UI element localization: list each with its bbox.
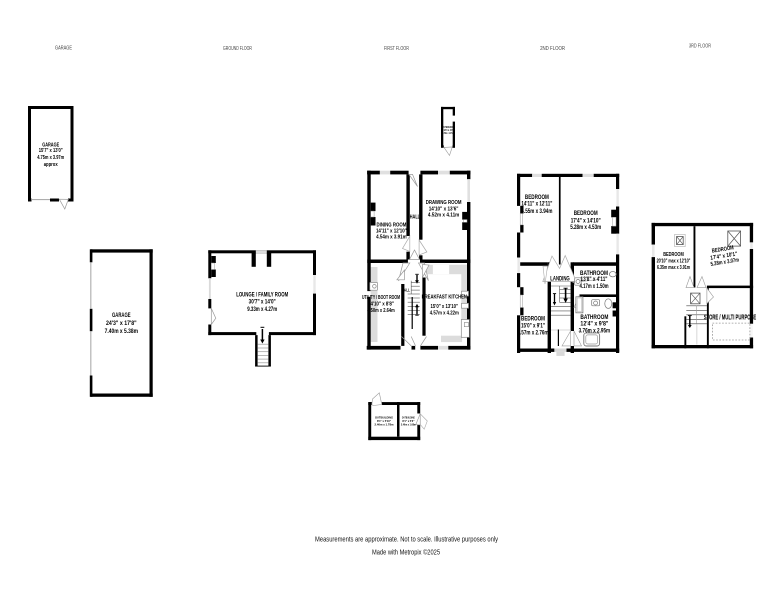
svg-text:4.50m x 2.64m: 4.50m x 2.64m (367, 308, 395, 314)
svg-text:BATHROOM: BATHROOM (580, 271, 608, 277)
svg-text:20'10" max x 12'10": 20'10" max x 12'10" (657, 259, 691, 265)
svg-text:Made with Metropix ©2025: Made with Metropix ©2025 (372, 548, 440, 557)
svg-text:15'0" x 9'1": 15'0" x 9'1" (521, 322, 545, 329)
svg-text:14'10" x 8'8": 14'10" x 8'8" (368, 302, 395, 308)
svg-text:13'8" x 4'11": 13'8" x 4'11" (581, 277, 608, 283)
svg-text:HALL: HALL (410, 215, 421, 221)
svg-text:BEDROOM: BEDROOM (574, 210, 598, 217)
svg-text:4.75m x 3.97m: 4.75m x 3.97m (37, 155, 64, 161)
svg-text:24'3" x 17'8": 24'3" x 17'8" (106, 320, 137, 327)
svg-text:4.54m x 3.91m: 4.54m x 3.91m (376, 235, 407, 241)
svg-text:2.46m x 1.68m: 2.46m x 1.68m (401, 423, 416, 427)
svg-text:4.17m x 1.50m: 4.17m x 1.50m (580, 284, 609, 290)
svg-text:5.28m x 4.53m: 5.28m x 4.53m (570, 224, 601, 231)
svg-text:BREAKFAST KITCHEN: BREAKFAST KITCHEN (422, 295, 468, 301)
svg-text:LANDING: LANDING (550, 276, 570, 283)
svg-text:7.40m x 5.38m: 7.40m x 5.38m (105, 328, 139, 335)
svg-text:14'11" x 12'11": 14'11" x 12'11" (521, 201, 552, 208)
svg-text:STORE / MULTI PURPOSE: STORE / MULTI PURPOSE (704, 313, 757, 322)
svg-text:2ND FLOOR: 2ND FLOOR (540, 46, 565, 52)
svg-text:14'10" x 13'6": 14'10" x 13'6" (429, 206, 459, 212)
svg-text:DRAWING ROOM: DRAWING ROOM (426, 200, 462, 206)
svg-text:4.57m x 4.22m: 4.57m x 4.22m (430, 311, 460, 317)
svg-text:GARAGE: GARAGE (112, 312, 131, 319)
svg-text:9.33m x 4.27m: 9.33m x 4.27m (247, 306, 277, 313)
svg-text:Measurements are approximate.: Measurements are approximate. Not to sca… (315, 534, 498, 543)
svg-text:30'7" x 14'0": 30'7" x 14'0" (249, 299, 276, 306)
svg-text:HALL: HALL (402, 288, 410, 293)
svg-text:GARAGE: GARAGE (55, 46, 73, 52)
svg-text:GROUND FLOOR: GROUND FLOOR (223, 46, 252, 52)
svg-text:6.35m max x 3.91m: 6.35m max x 3.91m (657, 265, 690, 271)
svg-text:2.46m x 1.78m: 2.46m x 1.78m (375, 423, 394, 427)
svg-text:FIRST FLOOR: FIRST FLOOR (384, 46, 409, 52)
svg-text:4.55m x 3.94m: 4.55m x 3.94m (521, 208, 552, 215)
svg-text:12'4" x 9'8": 12'4" x 9'8" (580, 322, 608, 328)
svg-text:3.76m x 1.27m: 3.76m x 1.27m (443, 131, 454, 135)
svg-text:4.52m x 4.11m: 4.52m x 4.11m (428, 213, 460, 219)
svg-text:BEDROOM: BEDROOM (663, 252, 684, 258)
svg-text:approx: approx (44, 162, 58, 168)
svg-text:15'7" x 13'0": 15'7" x 13'0" (39, 148, 64, 154)
svg-text:LOUNGE / FAMILY ROOM: LOUNGE / FAMILY ROOM (236, 291, 288, 298)
svg-text:UTILITY / BOOT ROOM: UTILITY / BOOT ROOM (362, 295, 400, 301)
svg-text:3.76m x 2.95m: 3.76m x 2.95m (579, 329, 611, 335)
svg-text:BATHROOM: BATHROOM (580, 315, 608, 321)
svg-text:3RD FLOOR: 3RD FLOOR (689, 44, 711, 50)
svg-text:15'0" x 13'10": 15'0" x 13'10" (431, 304, 459, 310)
svg-text:4.57m x 2.76m: 4.57m x 2.76m (518, 329, 549, 336)
